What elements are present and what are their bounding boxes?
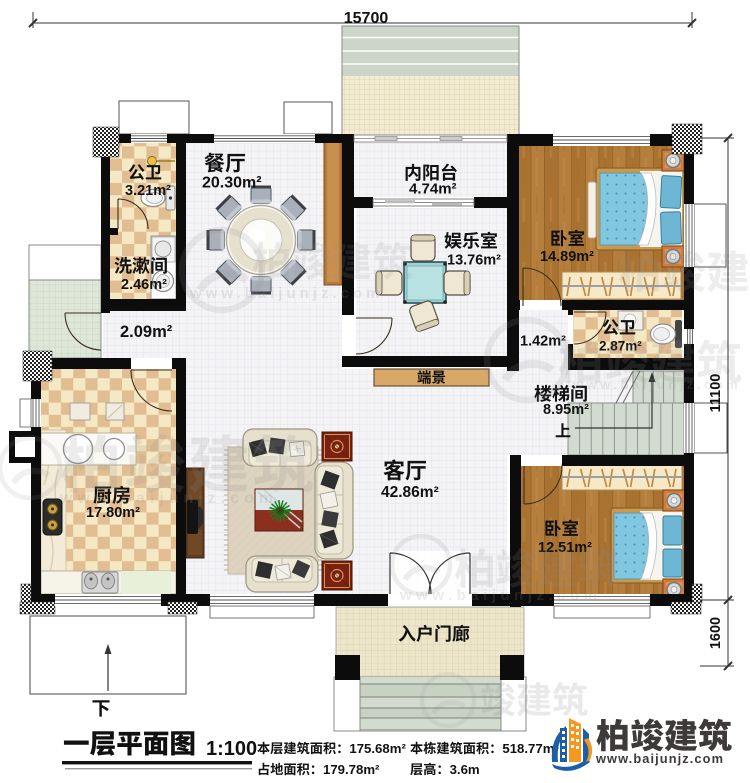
svg-text:www.baijunjz.com: www.baijunjz.com: [189, 285, 383, 302]
svg-text:2.09m²: 2.09m²: [120, 323, 173, 341]
svg-text:1:100: 1:100: [206, 738, 257, 760]
svg-text:20.30m²: 20.30m²: [202, 175, 262, 192]
svg-text:42.86m²: 42.86m²: [381, 484, 439, 501]
svg-text:179.78m²: 179.78m²: [323, 762, 380, 777]
svg-text:13.76m²: 13.76m²: [447, 253, 501, 269]
svg-text:3.6m: 3.6m: [450, 762, 480, 777]
svg-text:8.95m²: 8.95m²: [543, 402, 589, 418]
svg-text:518.77m²: 518.77m²: [502, 741, 559, 756]
svg-text:1600: 1600: [708, 617, 724, 649]
svg-text:www.baijunjz.com: www.baijunjz.com: [595, 751, 724, 766]
svg-text:17.80m²: 17.80m²: [86, 505, 140, 521]
svg-text:175.68m²: 175.68m²: [349, 741, 406, 756]
svg-text:3.21m²: 3.21m²: [125, 183, 171, 199]
svg-text:15700: 15700: [344, 10, 389, 27]
svg-text:www.baijunjz.com: www.baijunjz.com: [59, 490, 278, 507]
svg-text:11100: 11100: [708, 374, 724, 413]
svg-text:www.baijunjz.com: www.baijunjz.com: [399, 587, 601, 604]
svg-text:2.46m²: 2.46m²: [121, 277, 167, 293]
svg-text:14.89m²: 14.89m²: [540, 249, 594, 265]
svg-text:4.74m²: 4.74m²: [409, 181, 457, 198]
